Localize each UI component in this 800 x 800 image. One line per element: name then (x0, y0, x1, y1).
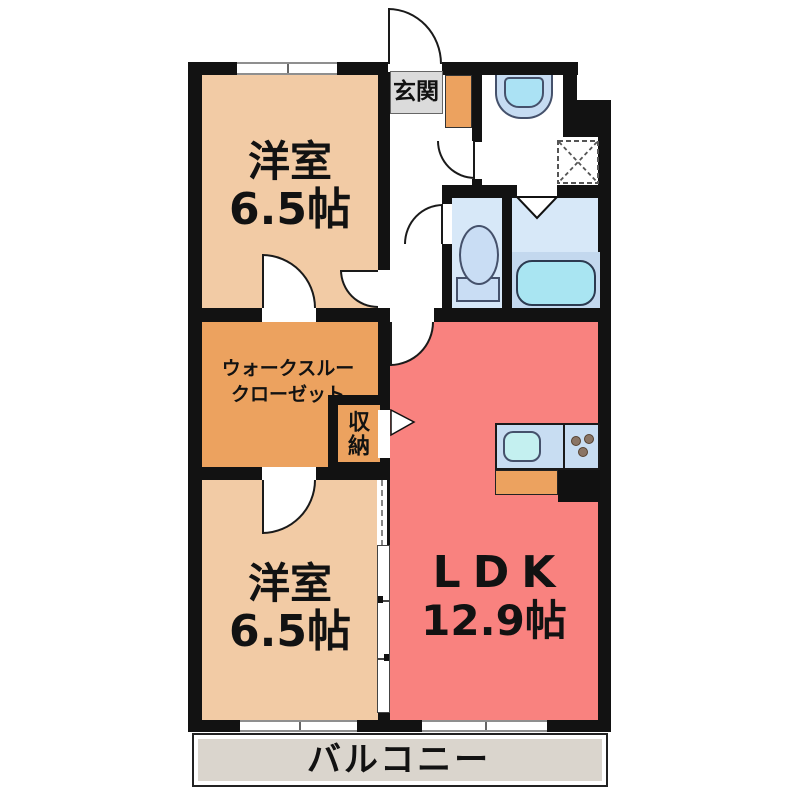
dashed-line (381, 480, 383, 546)
sliding-door-handle (384, 654, 389, 661)
window-bedroom-bottom (240, 720, 357, 732)
label-balcony: バルコニー (307, 741, 491, 779)
closet-name-line1: ウォークスルー (222, 356, 354, 382)
bedroom-bottom-name: 洋室 (229, 560, 351, 607)
label-walk-through-closet: ウォークスルー クローゼット (222, 356, 354, 407)
sliding-door-handle (378, 596, 383, 603)
bedroom-top-name: 洋室 (229, 138, 351, 185)
wall-top-right-step (563, 100, 611, 137)
label-bedroom-bottom: 洋室 6.5帖 (229, 560, 351, 656)
stove-burner-icon (578, 447, 588, 457)
storage-door-swing-icon (390, 409, 416, 437)
wall-left (188, 62, 202, 732)
window-mullion (485, 722, 487, 730)
bedroom-bottom-size: 6.5帖 (229, 607, 351, 656)
label-storage: 収納 (347, 412, 371, 461)
storage-name: 収納 (347, 412, 371, 460)
window-bedroom-top (237, 62, 337, 75)
doorway-bedroom-top-hall (378, 270, 390, 308)
window-mullion (287, 64, 289, 73)
bathtub-icon (516, 260, 596, 306)
entrance-name: 玄関 (393, 79, 439, 105)
washroom-door-arc (437, 141, 475, 179)
washing-machine-space-icon (556, 139, 600, 185)
label-entrance: 玄関 (393, 80, 439, 106)
doorway-bedroom-top-closet (262, 308, 316, 322)
window-mullion (299, 722, 301, 730)
stove-burner-icon (584, 434, 594, 444)
bath-door-icon (516, 196, 558, 220)
ldk-name: LDK (421, 548, 568, 597)
label-ldk: LDK 12.9帖 (421, 548, 568, 644)
entrance-floor-strip (445, 75, 472, 128)
kitchen-counter-divider (563, 423, 565, 470)
washbasin-sink-icon (504, 77, 544, 108)
wall-toilet-bath-divider (502, 197, 512, 308)
balcony-name: バルコニー (307, 740, 491, 780)
doorway-closet-bedroom-bottom (262, 467, 316, 480)
sliding-door (377, 545, 390, 713)
entry-door-arc (388, 8, 442, 64)
kitchen-black-block (558, 470, 600, 502)
window-ldk (422, 720, 547, 732)
kitchen-sink-icon (503, 431, 541, 462)
ldk-size: 12.9帖 (421, 597, 568, 644)
label-bedroom-top: 洋室 6.5帖 (229, 138, 351, 234)
stove-burner-icon (571, 436, 581, 446)
opening-dashed (377, 480, 390, 546)
toilet-bowl-icon (459, 225, 499, 285)
doorway-toilet (442, 204, 452, 244)
storage-door-gap (378, 410, 390, 458)
doorway-hall-ldk (390, 308, 434, 322)
bedroom-top-size: 6.5帖 (229, 185, 351, 234)
toilet-door-arc (404, 204, 443, 244)
closet-name-line2: クローゼット (222, 382, 354, 408)
kitchen-lower-cabinet (495, 470, 558, 495)
room-ldk (378, 322, 600, 720)
floor-plan: 洋室 6.5帖 洋室 6.5帖 LDK 12.9帖 ウォークスルー クローゼット… (0, 0, 800, 800)
